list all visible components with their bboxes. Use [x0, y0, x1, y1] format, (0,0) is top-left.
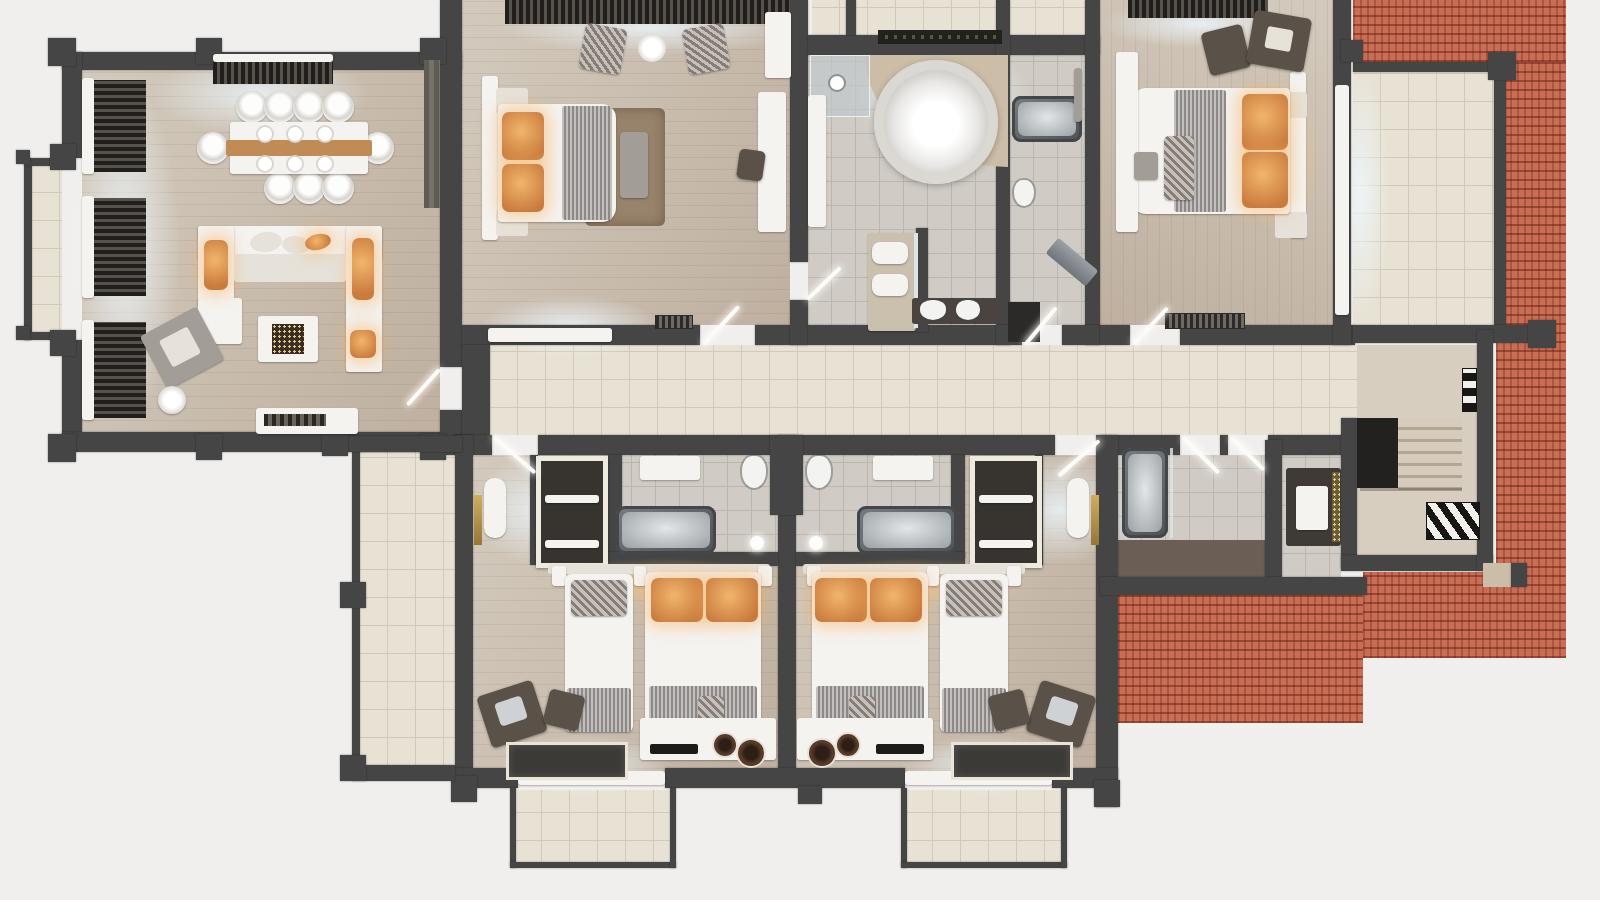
stair-window-marker-diagonal [1426, 502, 1480, 540]
bedroom1-desk-stool [736, 148, 766, 181]
roomA-left-wall [455, 435, 473, 780]
bath3-right-wall [1265, 440, 1282, 577]
roomA-tv [650, 744, 698, 754]
balconyB-wall-right [1061, 788, 1067, 868]
bedroom1-pillow [502, 112, 544, 160]
place-setting [318, 157, 332, 171]
bedroom1-bench [620, 132, 648, 198]
roomB-double-pillow [815, 578, 867, 622]
roof-bottom-right-lower [1118, 588, 1363, 723]
bedroom2-desk [1116, 52, 1138, 232]
bedroom1-pillow [502, 164, 544, 212]
masterbath-left-wall-lower [790, 300, 808, 345]
balconyA-wall-bottom [510, 862, 676, 868]
console-decor [264, 414, 326, 426]
bay-left-wall [24, 158, 32, 340]
pillar [48, 434, 76, 462]
pillar [1488, 52, 1516, 80]
place-setting [258, 157, 272, 171]
bedroom1-blanket [562, 106, 612, 220]
shaft-wall [770, 435, 803, 515]
terrace-left-floor [360, 452, 455, 765]
roomB-single-pillow [946, 580, 1002, 616]
roomB-closet-shelf [979, 540, 1033, 548]
bedroom1-side-table [638, 34, 666, 62]
bath-divider-wall [996, 0, 1010, 345]
balconyB-wall-bottom [901, 862, 1067, 868]
roomA-closet [536, 456, 608, 568]
dining-chair [322, 172, 354, 204]
pillar [50, 330, 76, 356]
bathB-toilet [807, 456, 831, 488]
ledge-edge-wall [846, 0, 856, 35]
side-table [158, 386, 186, 414]
living-left-wall-upper [62, 52, 82, 158]
ensuite-tub-inner [1018, 102, 1076, 136]
masterbath-cabinet [808, 95, 826, 227]
balconyA-wall-right [670, 788, 676, 868]
ensuite-bottom-wall-right [1062, 325, 1100, 345]
bedroom1-bottom-window [488, 328, 612, 342]
sofa-seat-cushions [234, 254, 346, 282]
roomB-rug [951, 742, 1073, 780]
floor-plan-render [0, 0, 1600, 900]
stair-bottom-wall [1341, 555, 1493, 571]
bedroom1-armchair [578, 23, 627, 76]
bathB-tub-inner [863, 512, 951, 548]
bath3-floor-dark [1118, 540, 1265, 577]
bedroom2-nightstand [1275, 212, 1307, 238]
duct-shaft [1008, 302, 1040, 342]
living-wardrobe [424, 60, 440, 208]
dining-chair [264, 91, 296, 123]
roomA-double-pillow [651, 578, 703, 622]
roomA-double-pillow [706, 578, 758, 622]
terraceL-outer-wall [352, 438, 360, 778]
terrace-bottom-wall [1353, 325, 1550, 343]
roomB-mirror [1091, 495, 1099, 545]
ensuite-toilet [1014, 180, 1034, 206]
terrace-right-floor [1353, 72, 1494, 325]
place-setting [318, 127, 332, 141]
roomB-right-wall [1096, 435, 1118, 807]
terraceL-top-wall [330, 436, 462, 452]
roof-top-right-band [1353, 0, 1566, 62]
jacuzzi-tub [874, 60, 998, 184]
roomA-single-pillow [571, 580, 627, 616]
living-left-window-sill [82, 320, 94, 420]
sofa-cushion-orange [204, 240, 228, 290]
rooms-bottom-wall-mid [665, 768, 905, 788]
living-left-window-sill [82, 196, 94, 298]
stair-landing-edge [1360, 488, 1462, 491]
pillar [1094, 780, 1120, 807]
bidet [956, 300, 980, 320]
roomB-plate [837, 734, 859, 756]
shower-head [830, 76, 844, 90]
bathA-tub-inner [622, 512, 710, 548]
terraceL-bottom-wall [352, 765, 455, 781]
dining-chair [197, 132, 229, 164]
bathB-mirror-light [809, 536, 823, 550]
pillar [48, 38, 76, 66]
living-left-window-sill [82, 78, 94, 174]
toilet [920, 300, 946, 320]
bay-window-floor [32, 166, 62, 332]
terrace-top-wall [1353, 62, 1494, 72]
masterbath-left-wall-upper [790, 0, 808, 262]
bedroom2-desk-stool [1134, 152, 1158, 180]
bedroom2-armchair-seat [1264, 26, 1293, 52]
roomB-plate [809, 740, 835, 766]
living-left-window-curtain [94, 322, 146, 418]
bathA-toilet [742, 456, 766, 488]
pillar [1528, 320, 1556, 348]
roomB-sconce [927, 566, 939, 586]
bedroom2-pillow [1242, 152, 1288, 208]
balconyB-floor [905, 790, 1063, 868]
roomB-basin [1067, 478, 1089, 538]
place-setting [288, 157, 302, 171]
bedroom2-radiator [1165, 313, 1245, 329]
vanity-sink [872, 274, 908, 296]
sofa-cushion-orange [350, 330, 376, 358]
ensuite-right-wall [1085, 0, 1100, 345]
roomA-sconce [552, 566, 566, 586]
roomA-plate [714, 734, 736, 756]
pillar [798, 786, 822, 804]
bedroom2-terrace-sill [1335, 85, 1349, 315]
pillar [340, 582, 366, 608]
pillar [340, 755, 366, 781]
roof-bottom-right-upper [1363, 572, 1566, 658]
living-top-window-sill [213, 54, 333, 62]
roomA-mirror [474, 495, 482, 545]
balconyA-floor [514, 790, 672, 868]
hall-bottom-wall-4 [1220, 435, 1228, 455]
roof-pillar-beige [1483, 563, 1511, 587]
roomA-closet-shelf [545, 540, 599, 548]
balconyA-wall-left [510, 788, 516, 868]
bathB-sink [873, 456, 933, 480]
stair-left-wall [1341, 418, 1357, 568]
place-setting [288, 127, 302, 141]
roof-top-wall [1100, 577, 1367, 595]
towel-rail [1074, 68, 1082, 122]
coffee-table-tray [272, 324, 304, 354]
roomA-rug [506, 742, 628, 780]
hallway-floor [490, 345, 1357, 435]
roomB-tv [876, 744, 924, 754]
roomB-double-pillow [870, 578, 922, 622]
bedroom2-bench [1164, 136, 1194, 200]
stair-window-marker [1462, 368, 1477, 412]
roomB-closet [970, 456, 1042, 568]
bath3-tub-inner [1128, 454, 1162, 532]
bedroom2-top-curtain [1128, 0, 1268, 18]
terrace-right-wall [1494, 62, 1506, 332]
dining-chair [293, 172, 325, 204]
dining-chair [264, 172, 296, 204]
pillar [16, 326, 30, 340]
bathA-mirror-light [750, 536, 764, 550]
stair-void [1357, 418, 1399, 488]
living-top-window-curtain [213, 62, 333, 84]
roomB-closet-shelf [979, 495, 1033, 503]
pillar [16, 150, 30, 164]
hallway-left-stub [462, 345, 490, 435]
place-setting [258, 127, 272, 141]
roomB-sconce [1007, 566, 1021, 586]
wc-sink [1296, 486, 1328, 530]
roomA-plate [738, 740, 764, 766]
bedroom2-bottom-wall-left [1100, 325, 1130, 345]
living-left-window-curtain [94, 198, 146, 296]
pillar [196, 434, 222, 460]
bathA-sink [640, 456, 700, 480]
dining-table-runner [226, 140, 372, 156]
living-left-window-curtain [94, 80, 146, 172]
roomA-basin [484, 478, 506, 538]
vanity-sink [872, 242, 908, 264]
dining-chair [322, 91, 354, 123]
bedroom2-pillow [1242, 94, 1288, 150]
dining-chair [293, 91, 325, 123]
masterbath-plant-green [882, 33, 998, 41]
roof-pillar-dark [1511, 563, 1527, 587]
bedroom1-top-curtain [505, 0, 790, 24]
pillar [50, 144, 76, 170]
sofa-cushion-orange [352, 238, 374, 300]
bath3-glass [1170, 448, 1173, 538]
roomA-closet-shelf [545, 495, 599, 503]
pillar [1341, 40, 1363, 62]
bedroom1-radiator [655, 315, 693, 329]
stair-steps [1398, 418, 1462, 490]
bedroom1-armchair [681, 23, 730, 76]
wc-gold-towel [1332, 472, 1340, 542]
bedroom1-cabinet [765, 12, 791, 78]
balconyB-wall-left [901, 788, 907, 868]
